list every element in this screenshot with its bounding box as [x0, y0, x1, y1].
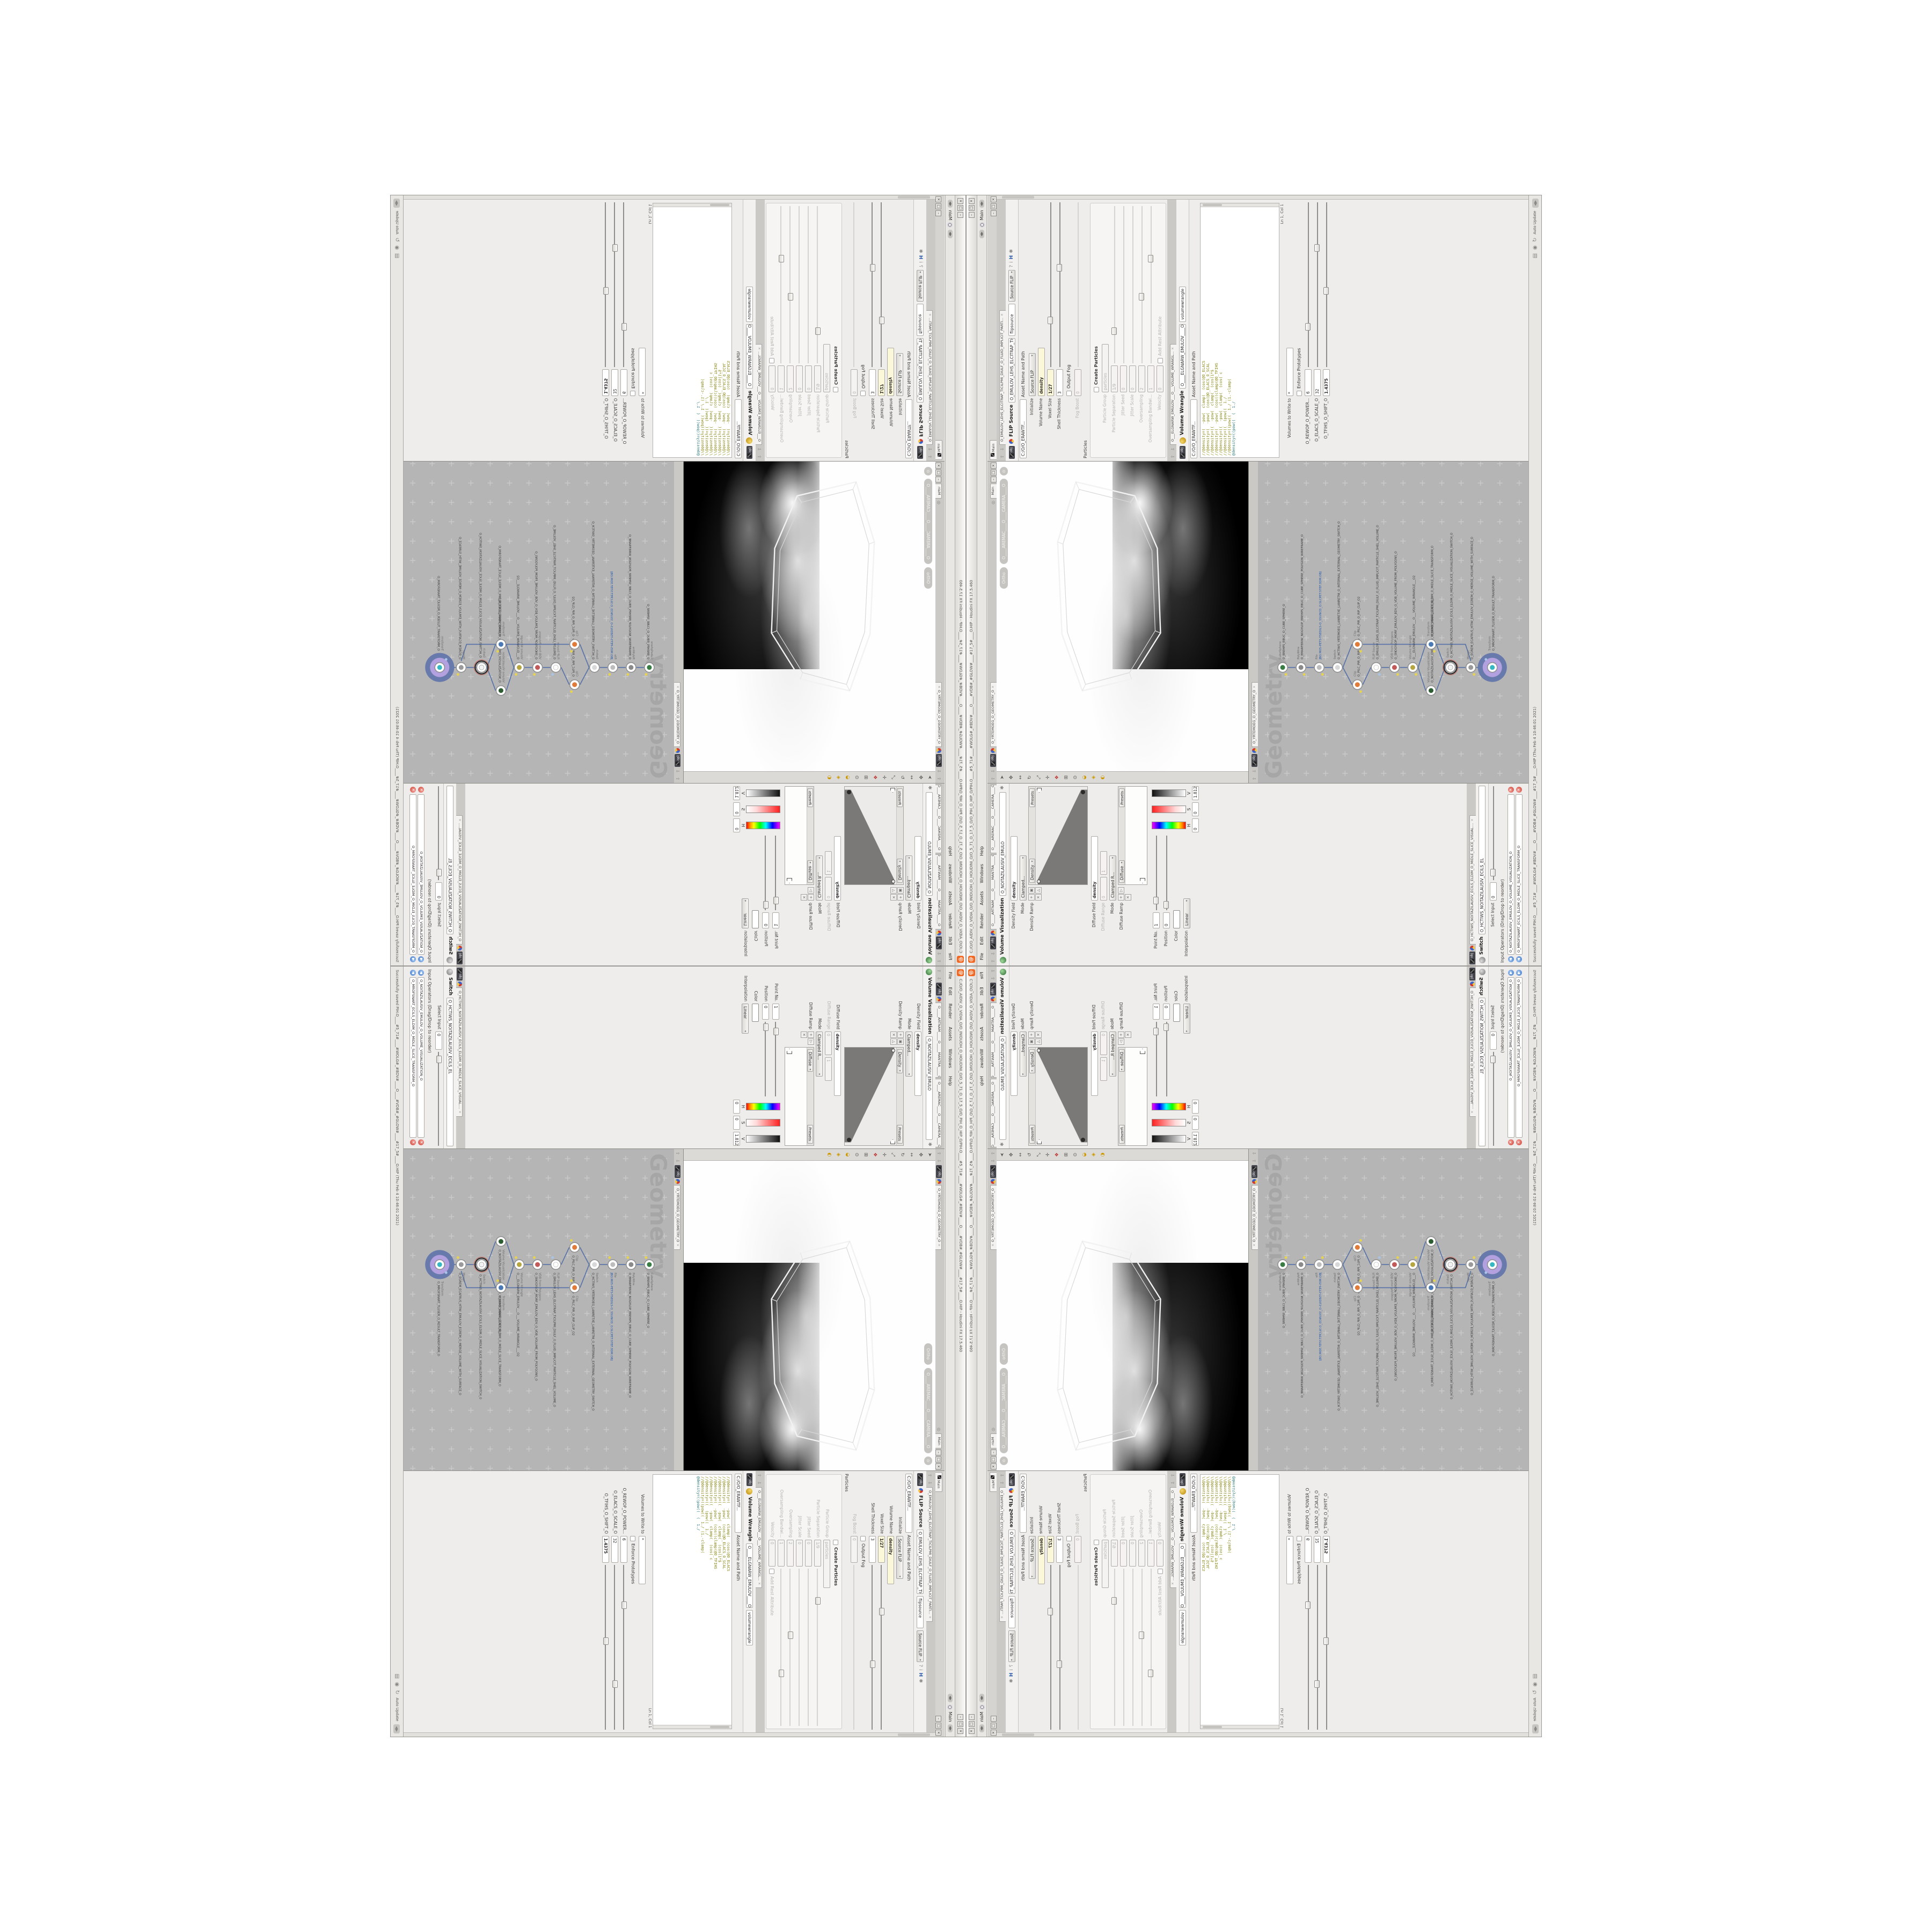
- nav-down-icon[interactable]: ⇩: [990, 950, 997, 957]
- panel-close-button[interactable]: ×: [991, 196, 997, 202]
- density-ramp-canvas[interactable]: [1036, 787, 1087, 884]
- ramp-field-dropdown[interactable]: Density: [897, 1049, 903, 1073]
- hand-tool-icon[interactable]: ✥: [1008, 773, 1015, 781]
- particle-separation-slider[interactable]: [1111, 1569, 1118, 1726]
- houdini-help-icon[interactable]: H: [1009, 255, 1014, 260]
- fog-boost-slider[interactable]: [851, 1565, 858, 1730]
- menu-assets[interactable]: Assets: [979, 890, 985, 906]
- point-no-slider[interactable]: [772, 836, 779, 910]
- gear-icon[interactable]: ✱: [926, 1142, 932, 1146]
- rotate-tool-icon[interactable]: ↻: [1027, 1151, 1034, 1159]
- volume-name-input[interactable]: density: [1038, 1536, 1045, 1584]
- flip-node-name-field[interactable]: O_EMULOV_LEHS_ELCITRAP_TICI: [917, 338, 924, 402]
- voxel-size-slider[interactable]: [878, 202, 885, 367]
- nav-down-icon[interactable]: ⇩: [1252, 768, 1258, 774]
- power-param-slider[interactable]: [1305, 1565, 1312, 1730]
- pose-tool-icon[interactable]: ❖: [871, 1151, 878, 1159]
- nav-down-icon[interactable]: ⇩: [990, 1158, 997, 1164]
- diffuse-ramp-marker[interactable]: [1140, 1049, 1145, 1054]
- camera-selector-pill[interactable]: O____AREMAC____O____CAMERA____O: [1000, 479, 1008, 564]
- remove-input-icon[interactable]: ✕: [1516, 787, 1522, 793]
- remove-input-icon[interactable]: ✕: [418, 787, 424, 793]
- tab-main-panel[interactable]: Main: [935, 1472, 942, 1492]
- select-input-field[interactable]: 0: [1490, 882, 1497, 901]
- menu-edit[interactable]: Edit: [947, 935, 953, 946]
- diffuse-mode-dropdown[interactable]: Clamped R...: [816, 1031, 823, 1077]
- remove-input-icon[interactable]: ✕: [410, 1139, 416, 1145]
- panel-scrollbar[interactable]: [404, 195, 935, 200]
- desktop-selector[interactable]: Main: [979, 1712, 984, 1722]
- input-operator-2[interactable]: O_MROFSNART_ECILS_ELDIM_O_MIDLE_SLICE_TR…: [1516, 977, 1523, 1138]
- obj-context-badge[interactable]: obj: [918, 1473, 924, 1486]
- tab-flip-source[interactable]: O_EMULOV_LEHS_ELCITRAP_TICILPMI_DIULF_O_…: [999, 1487, 1006, 1622]
- nav-down-icon[interactable]: ⇩: [756, 1480, 762, 1486]
- oversampling-slider[interactable]: [787, 1569, 794, 1726]
- density-ramp-widget[interactable]: Density Presets: [1028, 786, 1088, 885]
- oversampling-bandwidth-slider[interactable]: [1147, 206, 1154, 363]
- density-ramp-presets-button[interactable]: Presets: [897, 788, 903, 807]
- menu-help[interactable]: Help: [947, 845, 953, 857]
- menu-file[interactable]: File: [979, 952, 985, 961]
- tab-switch[interactable]: O_HCTIWS_NOITAZILAUSIV_ECILS_ELDIM_O_MID…: [456, 987, 463, 1117]
- vex-code-editor[interactable]: //@density=( -pow( clamp( (cos(@O_ELACS …: [1200, 203, 1279, 458]
- enforce-prototypes-checkbox[interactable]: [630, 1536, 635, 1541]
- oversampling-input[interactable]: 2: [787, 1540, 794, 1567]
- hand-tool-icon[interactable]: ✥: [1008, 1151, 1015, 1159]
- value-gradient-bar[interactable]: [746, 1135, 780, 1143]
- output-fog-checkbox[interactable]: [861, 391, 866, 396]
- diffuse-ramp-play-icon[interactable]: ▷: [808, 887, 814, 894]
- ramp-position-marker[interactable]: [1037, 788, 1042, 793]
- diffuse-field-input[interactable]: density: [1091, 836, 1098, 901]
- density-field-input[interactable]: density: [1011, 1031, 1018, 1096]
- input-operator-2[interactable]: O_MROFSNART_ECILS_ELDIM_O_MIDLE_SLICE_TR…: [409, 794, 416, 955]
- network-editor[interactable]: Geometry: [404, 462, 674, 783]
- density-ramp-canvas[interactable]: [845, 787, 896, 884]
- ramp-triangle-icon[interactable]: △: [890, 1038, 897, 1045]
- fog-boost-slider[interactable]: [1074, 202, 1081, 367]
- nav-down-icon[interactable]: ⇩: [990, 768, 997, 774]
- maximize-button[interactable]: □: [969, 1721, 975, 1727]
- value-gradient-bar[interactable]: [746, 789, 780, 797]
- select-input-field[interactable]: 0: [435, 882, 442, 901]
- oversampling-bandwidth-slider[interactable]: [1147, 1569, 1154, 1726]
- pin-icon[interactable]: ◎: [990, 500, 997, 506]
- tab-mantra[interactable]: O_____ARTNAM_____O_____MANTRA_____O✕: [990, 1002, 997, 1078]
- select-input-slider[interactable]: [435, 1052, 442, 1146]
- vex-code-editor[interactable]: //@density=( -pow( clamp( (cos(@O_ELACS …: [1200, 1474, 1279, 1729]
- diffuse-ramp-widget[interactable]: Diffuse Presets: [785, 1047, 814, 1146]
- diffuse-ramp-widget[interactable]: Diffuse Presets: [1118, 786, 1147, 885]
- mode-dropdown[interactable]: Clamped...: [1020, 1031, 1027, 1077]
- help-icon[interactable]: ?: [917, 265, 923, 268]
- add-rest-checkbox[interactable]: [770, 358, 775, 363]
- houdini-help-icon[interactable]: H: [1009, 1673, 1014, 1677]
- scale-param-slider[interactable]: [1314, 202, 1321, 367]
- oversampling-input[interactable]: 2: [1138, 1540, 1145, 1567]
- jitter-scale-input[interactable]: 0: [1129, 365, 1136, 392]
- jitter-seed-input[interactable]: 0: [805, 1540, 812, 1567]
- fog-boost-input[interactable]: 0: [1074, 1536, 1081, 1563]
- ramp-handle-start[interactable]: [891, 1049, 895, 1052]
- point-no-slider[interactable]: [1153, 1022, 1160, 1096]
- create-particles-checkbox[interactable]: [1094, 1540, 1099, 1545]
- wire-mode-icon[interactable]: ◈: [1091, 1151, 1097, 1159]
- tab-main-panel[interactable]: Main: [990, 440, 997, 460]
- initialize-dropdown[interactable]: Source FLIP: [896, 1536, 903, 1579]
- ramp-delete-icon[interactable]: ✕: [890, 894, 897, 901]
- tab-volume-wrangle[interactable]: O___ELGNARW_EMULOV___O___VOLUME_WRANGL..…: [1170, 1487, 1176, 1588]
- jitter-scale-slider[interactable]: [1129, 206, 1136, 363]
- flip-path-field[interactable]: C:/O/O_ERAWTF...: [1020, 1474, 1027, 1533]
- jitter-seed-slider[interactable]: [1120, 206, 1127, 363]
- hue-gradient-bar[interactable]: [746, 822, 780, 829]
- handles-tool-icon[interactable]: ✛: [880, 773, 887, 781]
- smooth-mode-icon[interactable]: ◐: [825, 1151, 832, 1159]
- wire-mode-icon[interactable]: ◈: [835, 773, 841, 781]
- shift-param-slider[interactable]: [1323, 1565, 1330, 1730]
- input-operator-2[interactable]: O_MROFSNART_ECILS_ELDIM_O_MIDLE_SLICE_TR…: [1516, 794, 1523, 955]
- scale-tool-icon[interactable]: ⤢: [889, 773, 896, 781]
- gear-icon[interactable]: ✱: [1000, 786, 1005, 790]
- color-swatch[interactable]: [752, 910, 759, 928]
- close-button[interactable]: ×: [969, 198, 975, 204]
- flip-instance-field[interactable]: flipsource: [1008, 304, 1015, 336]
- output-fog-checkbox[interactable]: [861, 1536, 866, 1541]
- voxel-size-input[interactable]: 1/27: [1047, 369, 1054, 396]
- oversampling-input[interactable]: 2: [787, 365, 794, 392]
- oversampling-bandwidth-input[interactable]: 1: [778, 365, 785, 392]
- network-editor[interactable]: Geometry: [1258, 1149, 1528, 1470]
- v-input[interactable]: 1.8125: [733, 786, 740, 800]
- diffuse-ramp-delete-icon[interactable]: ✕: [1125, 894, 1131, 901]
- tab-flip-source[interactable]: O_EMULOV_LEHS_ELCITRAP_TICILPMI_DIULF_O_…: [999, 310, 1006, 445]
- jitter-scale-slider[interactable]: [796, 1569, 803, 1726]
- tab-main[interactable]: Main: [935, 484, 941, 499]
- minimize-button[interactable]: –: [957, 1714, 963, 1720]
- saturation-gradient-bar[interactable]: [746, 1119, 780, 1126]
- nav-up-icon[interactable]: ⇧: [990, 958, 997, 964]
- update-mode-pill[interactable]: ◀▶: [1532, 1724, 1539, 1733]
- shade-mode-icon[interactable]: ◒: [1081, 1151, 1088, 1159]
- input-operator-1[interactable]: O_NOITAZILAUSIV_EMULOV_O_VOLUME_VISUALIZ…: [1507, 794, 1514, 955]
- particle-separation-input[interactable]: 1/9: [1111, 365, 1118, 392]
- pane-close-button[interactable]: ×: [936, 1463, 942, 1469]
- volumes-to-write-input[interactable]: *: [1286, 1536, 1293, 1584]
- power-param-input[interactable]: 6: [1305, 1536, 1312, 1563]
- wrangle-path-field[interactable]: C:/O/O_ERAWTF...: [1190, 1474, 1197, 1533]
- tab-geometry-network[interactable]: O_YRTEMOEG_O_GEOMETRY_O✕: [674, 1185, 680, 1249]
- wrangle-path-field[interactable]: C:/O/O_ERAWTF...: [735, 399, 742, 458]
- diffuse-ramp-canvas[interactable]: [1125, 787, 1147, 884]
- diffuse-ramp-field-dropdown[interactable]: Diffuse: [808, 860, 814, 883]
- shift-param-input[interactable]: 1.4375: [1323, 1536, 1330, 1563]
- hand-tool-icon[interactable]: ✥: [917, 773, 924, 781]
- nav-down-icon[interactable]: ⇩: [935, 1158, 942, 1164]
- diffuse-field-input[interactable]: density: [834, 1031, 841, 1096]
- snap-grid-icon[interactable]: ⊞: [862, 773, 869, 781]
- snap-point-icon[interactable]: ⊙: [1072, 773, 1079, 781]
- ortho-pill[interactable]: Ortho: [1000, 567, 1008, 588]
- diffuse-ramp-play-icon[interactable]: ▷: [1118, 1038, 1124, 1045]
- tab-flip-source[interactable]: O_EMULOV_LEHS_ELCITRAP_TICILPMI_DIULF_O_…: [926, 1487, 933, 1622]
- scale-tool-icon[interactable]: ⤢: [1036, 1151, 1043, 1159]
- density-ramp-presets-button[interactable]: Presets: [897, 1125, 903, 1144]
- density-ramp-widget[interactable]: Density Presets: [844, 1047, 904, 1146]
- particle-group-input[interactable]: particles: [823, 344, 830, 392]
- hue-gradient-bar[interactable]: [1152, 1103, 1186, 1110]
- particle-group-input[interactable]: particles: [823, 1540, 830, 1588]
- camera-lock-icon[interactable]: ⊝: [1000, 467, 1008, 475]
- snap-grid-icon[interactable]: ⊞: [862, 1151, 869, 1159]
- volume-name-input[interactable]: density: [887, 1536, 894, 1584]
- particle-separation-input[interactable]: 1/9: [814, 365, 821, 392]
- vex-code-editor[interactable]: //@density=( -pow( clamp( (cos(@O_ELACS …: [653, 203, 732, 458]
- nav-down-icon[interactable]: ⇩: [999, 446, 1006, 452]
- panel-maximize-button[interactable]: □: [991, 1723, 997, 1729]
- diffuse-ramp-canvas[interactable]: [785, 787, 807, 884]
- wire-mode-icon[interactable]: ◈: [1091, 773, 1097, 781]
- voxel-size-slider[interactable]: [878, 1565, 885, 1730]
- panel-scrollbar[interactable]: [404, 1732, 935, 1737]
- shell-thickness-input[interactable]: 3: [1056, 369, 1063, 396]
- wrangle-node-name-field[interactable]: O____ELGNARW_EMULOV____O: [1179, 1543, 1186, 1608]
- oversampling-slider[interactable]: [787, 206, 794, 363]
- scale-param-input[interactable]: 32: [611, 369, 618, 396]
- scale-param-input[interactable]: 32: [1314, 1536, 1321, 1563]
- ramp-delete-icon[interactable]: ✕: [1035, 894, 1042, 901]
- scale-param-slider[interactable]: [1314, 1565, 1321, 1730]
- particle-separation-slider[interactable]: [1111, 206, 1118, 363]
- mode-dropdown[interactable]: Clamped...: [905, 855, 912, 901]
- panel-scrollbar[interactable]: [997, 195, 1528, 200]
- power-param-slider[interactable]: [620, 202, 627, 367]
- camera-selector-pill[interactable]: O____AREMAC____O____CAMERA____O: [924, 1368, 932, 1453]
- position-input[interactable]: 0: [1163, 912, 1170, 928]
- menu-file[interactable]: File: [947, 952, 953, 961]
- menu-edit[interactable]: Edit: [947, 986, 953, 997]
- voxel-size-input[interactable]: 1/27: [1047, 1536, 1054, 1563]
- pane-minimize-button[interactable]: –: [991, 477, 997, 482]
- pin-icon[interactable]: ◎: [935, 1426, 942, 1432]
- input-operator-1[interactable]: O_NOITAZILAUSIV_EMULOV_O_VOLUME_VISUALIZ…: [1507, 977, 1514, 1138]
- menu-render[interactable]: Render: [947, 1002, 953, 1020]
- shell-thickness-slider[interactable]: [1056, 1565, 1063, 1730]
- position-slider[interactable]: [762, 1022, 769, 1096]
- select-input-slider[interactable]: [435, 786, 442, 880]
- nav-down-icon[interactable]: ⇩: [990, 975, 997, 982]
- voxel-size-input[interactable]: 1/27: [878, 1536, 885, 1563]
- move-tool-icon[interactable]: ↔: [908, 1151, 914, 1159]
- oversampling-slider[interactable]: [1138, 1569, 1145, 1726]
- diffuse-ramp-add-icon[interactable]: +: [1118, 894, 1124, 901]
- diffuse-ramp-canvas[interactable]: [785, 1048, 807, 1145]
- flip-preset-dropdown[interactable]: Source FLIP: [917, 1630, 924, 1662]
- v-input[interactable]: 1.8125: [1192, 786, 1199, 800]
- code-scrollbar[interactable]: [1201, 1725, 1279, 1729]
- jump-to-node-icon[interactable]: ◀: [1516, 956, 1522, 962]
- initialize-dropdown[interactable]: Source FLIP: [1029, 1536, 1036, 1579]
- position-input[interactable]: 0: [762, 1004, 769, 1020]
- switch-node-name-field[interactable]: O_HCTIWS_NOITAZILAUSIV_ECILS_EL: [1479, 998, 1485, 1146]
- nav-down-icon[interactable]: ⇩: [999, 1480, 1006, 1486]
- density-ramp-canvas[interactable]: [845, 1048, 896, 1145]
- shift-param-slider[interactable]: [602, 202, 609, 367]
- oversampling-bandwidth-slider[interactable]: [778, 206, 785, 363]
- value-gradient-bar[interactable]: [1152, 789, 1186, 797]
- nav-down-icon[interactable]: ⇩: [674, 768, 680, 774]
- pane-close-button[interactable]: ×: [991, 463, 997, 469]
- position-input[interactable]: 0: [1163, 1004, 1170, 1020]
- tab-switch[interactable]: O_HCTIWS_NOITAZILAUSIV_ECILS_ELDIM_O_MID…: [456, 815, 463, 945]
- menu-edit[interactable]: Edit: [979, 935, 985, 946]
- wrangle-instance-field[interactable]: volumewrangle: [746, 287, 753, 322]
- interpolation-dropdown[interactable]: Linear: [742, 1004, 749, 1034]
- nav-down-icon[interactable]: ⇩: [756, 446, 762, 452]
- h-input[interactable]: 0: [733, 818, 740, 832]
- voxel-size-slider[interactable]: [1047, 1565, 1054, 1730]
- diffuse-ramp-play-icon[interactable]: ▷: [1118, 887, 1124, 894]
- shade-mode-icon[interactable]: ◒: [1081, 773, 1088, 781]
- pin-icon[interactable]: ◎: [990, 1426, 997, 1432]
- wrangle-path-field[interactable]: C:/O/O_ERAWTF...: [1190, 399, 1197, 458]
- particle-group-input[interactable]: particles: [1102, 344, 1109, 392]
- ramp-triangle-icon[interactable]: △: [890, 887, 897, 894]
- diffuse-mode-dropdown[interactable]: Clamped R...: [1109, 855, 1116, 901]
- ramp-add-icon[interactable]: +: [1028, 1031, 1035, 1038]
- gear-icon[interactable]: ✱: [1009, 249, 1014, 253]
- position-slider[interactable]: [762, 836, 769, 910]
- switch-node-name-field[interactable]: O_HCTIWS_NOITAZILAUSIV_ECILS_EL: [447, 998, 453, 1146]
- shift-param-slider[interactable]: [602, 1565, 609, 1730]
- shell-thickness-slider[interactable]: [1056, 202, 1063, 367]
- enforce-prototypes-checkbox[interactable]: [1297, 1536, 1302, 1541]
- obj-context-badge[interactable]: obj: [675, 754, 680, 767]
- h-input[interactable]: 0: [733, 1100, 740, 1114]
- nav-down-icon[interactable]: ⇩: [935, 768, 942, 774]
- shell-thickness-slider[interactable]: [869, 1565, 876, 1730]
- obj-context-badge[interactable]: obj: [1009, 446, 1015, 459]
- interpolation-dropdown[interactable]: Linear: [742, 898, 749, 928]
- velocity-input[interactable]: 0: [769, 1540, 775, 1567]
- tab-mantra[interactable]: O_____ARTNAM_____O_____MANTRA_____O✕: [935, 1002, 942, 1078]
- nav-up-icon[interactable]: ⇧: [935, 958, 942, 964]
- scale-tool-icon[interactable]: ⤢: [1036, 773, 1043, 781]
- menu-help[interactable]: Help: [979, 845, 985, 857]
- particle-separation-slider[interactable]: [814, 206, 821, 363]
- oversampling-bandwidth-slider[interactable]: [778, 1569, 785, 1726]
- flip-path-field[interactable]: C:/O/O_ERAWTF...: [905, 1474, 912, 1533]
- remove-input-icon[interactable]: ✕: [1508, 1139, 1514, 1145]
- interpolation-dropdown[interactable]: Linear: [1183, 1004, 1190, 1034]
- diffuse-ramp-delete-icon[interactable]: ✕: [801, 1031, 807, 1038]
- desktop-selector[interactable]: Main: [979, 210, 984, 220]
- ramp-grid-icon[interactable]: ▣: [1028, 1038, 1035, 1045]
- jitter-scale-input[interactable]: 0: [1129, 1540, 1136, 1567]
- interpolation-dropdown[interactable]: Linear: [1183, 898, 1190, 928]
- help-icon[interactable]: ?: [917, 1664, 923, 1667]
- velocity-input[interactable]: 0: [1157, 365, 1163, 392]
- input-operator-1[interactable]: O_NOITAZILAUSIV_EMULOV_O_VOLUME_VISUALIZ…: [418, 977, 425, 1138]
- nav-up-icon[interactable]: ⇧: [990, 968, 997, 974]
- flip-instance-field[interactable]: flipsource: [1008, 1596, 1015, 1628]
- diffuse-field-input[interactable]: density: [1091, 1031, 1098, 1096]
- nav-up-icon[interactable]: ⇧: [1170, 1472, 1176, 1479]
- v-input[interactable]: 1.8125: [1192, 1132, 1199, 1146]
- nav-up-icon[interactable]: ⇧: [756, 1472, 762, 1479]
- auto-update-selector[interactable]: Auto Update: [394, 211, 399, 235]
- volumes-to-write-input[interactable]: *: [639, 1536, 646, 1584]
- ramp-handle-start[interactable]: [891, 880, 895, 883]
- select-input-field[interactable]: 0: [1490, 1031, 1497, 1050]
- wrangle-instance-field[interactable]: volumewrangle: [746, 1610, 753, 1645]
- obj-context-badge[interactable]: obj: [990, 754, 996, 767]
- render-area[interactable]: Ortho O____AREMAC____O____CAMERA____O ⊝: [684, 1161, 935, 1470]
- nav-up-icon[interactable]: ⇧: [1252, 775, 1258, 782]
- output-fog-checkbox[interactable]: [1066, 391, 1072, 396]
- select-tool-icon[interactable]: ➤: [926, 1151, 933, 1159]
- nav-up-icon[interactable]: ⇧: [990, 1150, 997, 1157]
- ramp-triangle-icon[interactable]: △: [1035, 1038, 1042, 1045]
- value-gradient-bar[interactable]: [1152, 1135, 1186, 1143]
- gear-icon[interactable]: ✱: [1009, 1679, 1014, 1683]
- jump-to-node-icon[interactable]: ◀: [1508, 956, 1514, 962]
- shell-thickness-input[interactable]: 3: [1056, 1536, 1063, 1563]
- diffuse-ramp-field-dropdown[interactable]: Diffuse: [1119, 860, 1125, 883]
- volume-name-input[interactable]: density: [887, 348, 894, 396]
- nav-up-icon[interactable]: ⇧: [935, 968, 942, 974]
- tab-main[interactable]: Main: [935, 1433, 941, 1448]
- pane-maximize-button[interactable]: □: [991, 470, 997, 475]
- power-param-slider[interactable]: [1305, 202, 1312, 367]
- ramp-position-marker[interactable]: [890, 1139, 895, 1144]
- ramp-grid-icon[interactable]: ▣: [1028, 887, 1035, 894]
- network-editor[interactable]: Geometry: [404, 1149, 674, 1470]
- shade-mode-icon[interactable]: ◒: [844, 1151, 851, 1159]
- menu-file[interactable]: File: [947, 971, 953, 980]
- nav-down-icon[interactable]: ⇩: [674, 1158, 680, 1164]
- obj-context-badge[interactable]: obj: [936, 983, 942, 996]
- wrangle-instance-field[interactable]: volumewrangle: [1179, 1610, 1186, 1645]
- s-input[interactable]: 0: [1192, 802, 1199, 816]
- gear-icon[interactable]: ✱: [917, 1679, 923, 1683]
- shell-thickness-input[interactable]: 3: [869, 369, 876, 396]
- color-swatch[interactable]: [1173, 910, 1180, 928]
- maximize-button[interactable]: □: [969, 205, 975, 211]
- tab-volume-wrangle[interactable]: O___ELGNARW_EMULOV___O___VOLUME_WRANGL..…: [756, 344, 762, 445]
- jump-to-node-icon[interactable]: ◀: [1516, 970, 1522, 976]
- v-input[interactable]: 1.8125: [733, 1132, 740, 1146]
- camera-lock-icon[interactable]: ⊝: [924, 1457, 932, 1465]
- nav-up-icon[interactable]: ⇧: [935, 775, 942, 782]
- diffuse-ramp-add-icon[interactable]: +: [808, 1031, 814, 1038]
- jitter-seed-input[interactable]: 0: [1120, 365, 1127, 392]
- density-ramp-canvas[interactable]: [1036, 1048, 1087, 1145]
- oversampling-bandwidth-input[interactable]: 1: [778, 1540, 785, 1567]
- refresh-icon[interactable]: ↻: [1532, 1690, 1539, 1694]
- maximize-button[interactable]: □: [957, 1721, 963, 1727]
- snap-grid-icon[interactable]: ⊞: [1063, 773, 1070, 781]
- add-rest-checkbox[interactable]: [770, 1569, 775, 1574]
- obj-context-badge[interactable]: obj: [1009, 1473, 1015, 1486]
- panel-maximize-button[interactable]: □: [991, 203, 997, 209]
- auto-update-selector[interactable]: Auto Update: [394, 1697, 399, 1721]
- diffuse-ramp-marker[interactable]: [787, 878, 792, 883]
- panel-close-button[interactable]: ×: [991, 1730, 997, 1736]
- add-rest-checkbox[interactable]: [1158, 358, 1163, 363]
- oversampling-input[interactable]: 2: [1138, 365, 1145, 392]
- snap-point-icon[interactable]: ⊙: [853, 773, 860, 781]
